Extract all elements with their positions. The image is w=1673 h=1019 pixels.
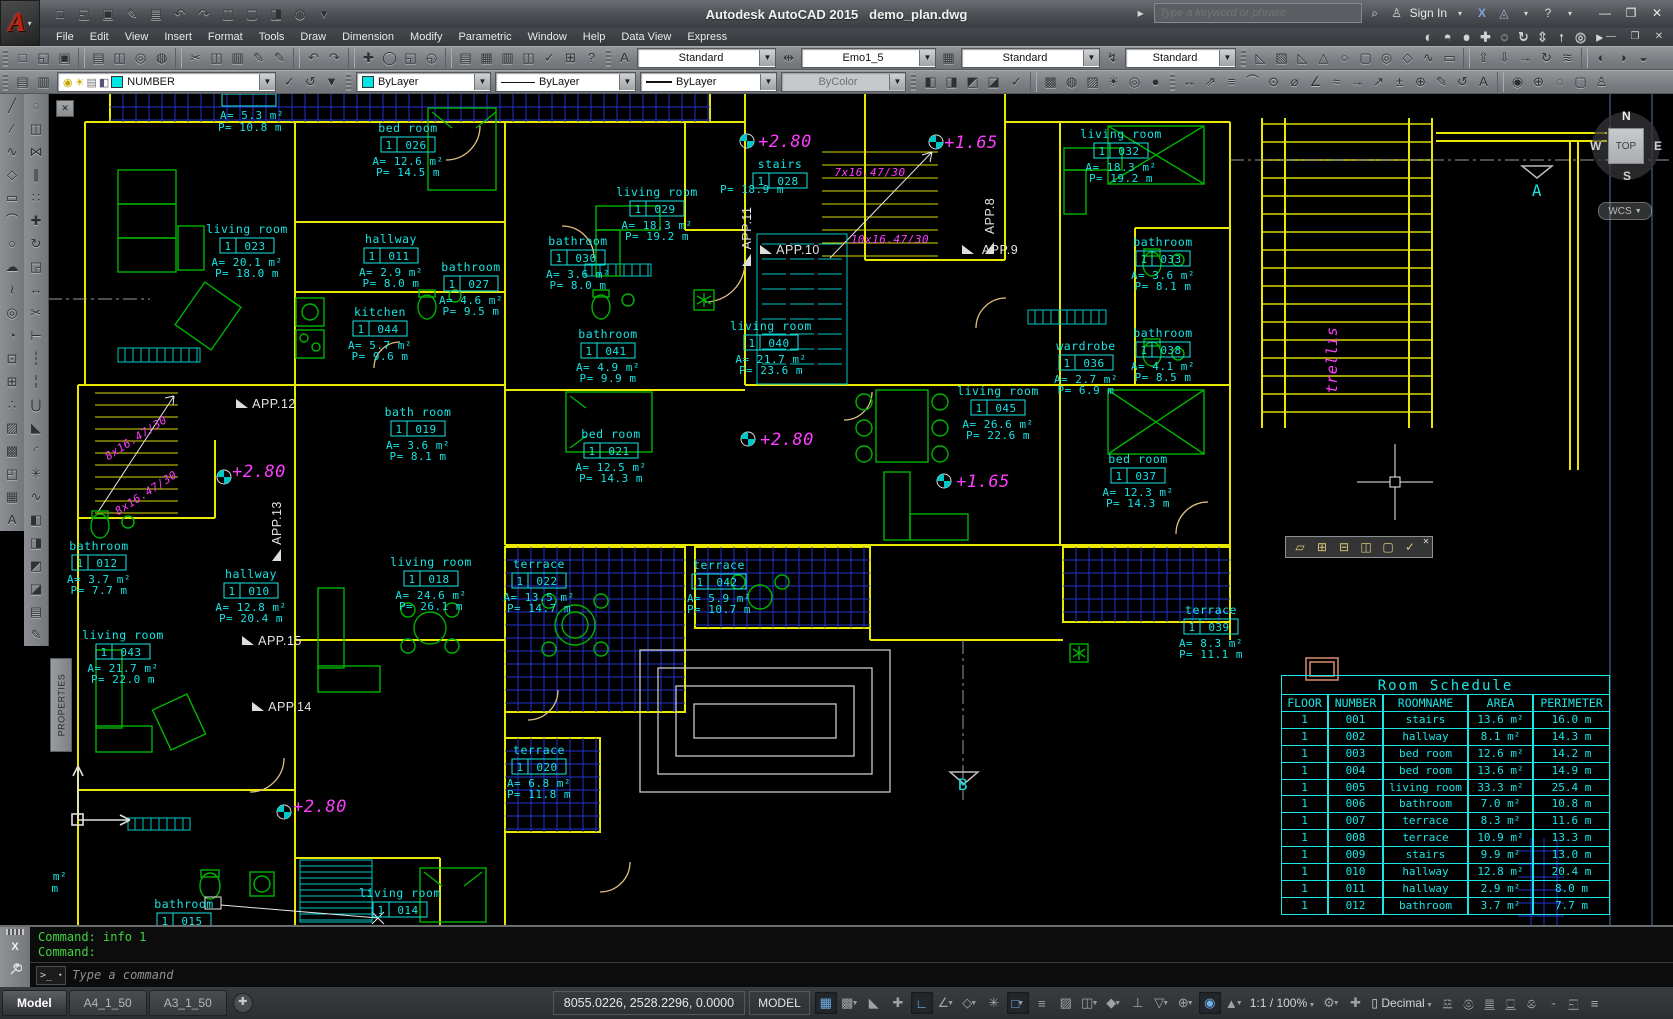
move-icon[interactable]: ✚ (25, 209, 47, 232)
drawing-canvas[interactable]: bed room1026A= 12.6 m²P= 14.5 mliving ro… (0, 94, 1673, 925)
erase-icon[interactable]: ◌ (25, 94, 47, 117)
ortho-mode-toggle[interactable]: ∟ (911, 992, 933, 1014)
menu-dimension[interactable]: Dimension (334, 31, 402, 43)
dim-leader-icon[interactable]: ↗ (1368, 72, 1389, 92)
design-center-icon[interactable]: ▦ (476, 48, 497, 68)
help-icon[interactable]: ? (581, 48, 602, 68)
schedule-row: 1002hallway8.1 m²14.3 m (1281, 729, 1610, 746)
scale-icon[interactable]: ◲ (25, 255, 47, 278)
multiline-text-icon[interactable]: A (1, 508, 23, 531)
command-input-row[interactable]: >_ ▾ Type a command (30, 963, 1673, 987)
properties-panel-tab[interactable]: PROPERTIES (50, 658, 72, 752)
pan-icon[interactable]: ✚ (358, 48, 379, 68)
cone-icon[interactable]: △ (1313, 48, 1334, 68)
dim-continue-icon[interactable]: → (1347, 72, 1368, 92)
svg-text:P= 14.7 m: P= 14.7 m (507, 602, 571, 615)
undo-icon[interactable]: ↶ (303, 48, 324, 68)
command-history[interactable]: Command: info 1 Command: (30, 927, 1673, 963)
cylinder-icon[interactable]: ▢ (1355, 48, 1376, 68)
mirror-icon[interactable]: ⋈ (25, 140, 47, 163)
text-style-combo[interactable]: Standard▼ (637, 48, 776, 68)
viewcube-south[interactable]: S (1623, 169, 1631, 183)
quick-calc-icon[interactable]: ⊞ (560, 48, 581, 68)
save-icon[interactable]: ▣ (96, 4, 120, 24)
isometric-drafting-toggle[interactable]: ◇▼ (959, 992, 981, 1014)
redo-icon[interactable]: ↷ (192, 4, 216, 24)
ellipse-arc-icon[interactable]: ◔ (1, 324, 23, 347)
cut-icon[interactable]: ✂ (185, 48, 206, 68)
layer-combo[interactable]: ◉ ☀ ▤ ◧ NUMBER▼ (57, 72, 276, 92)
hatch-icon[interactable]: ▨ (1, 416, 23, 439)
zoom-window-icon[interactable]: ◱ (400, 48, 421, 68)
command-window-grip[interactable]: X (0, 927, 30, 987)
new-icon[interactable]: □ (12, 48, 33, 68)
dim-edit-icon[interactable]: ✎ (1431, 72, 1452, 92)
linetype-combo[interactable]: ByLayer▼ (495, 72, 636, 92)
svg-text:P= 18.9 m: P= 18.9 m (720, 183, 784, 196)
pyramid-icon[interactable]: ◇ (1397, 48, 1418, 68)
svg-text:1: 1 (555, 252, 562, 265)
selection-cycling-toggle[interactable]: ◫▼ (1079, 992, 1101, 1014)
open-icon[interactable]: ◱ (33, 48, 54, 68)
object-snap-toggle[interactable]: □▼ (1007, 992, 1029, 1014)
svg-text:P= 8.0 m: P= 8.0 m (550, 279, 607, 292)
named-views-icon[interactable]: ▢ (1570, 72, 1591, 92)
dim-arc-icon[interactable]: ⌒ (1242, 72, 1263, 92)
add-to-working-set-icon[interactable]: ⊞ (1311, 538, 1333, 556)
doc-restore-button[interactable]: ❐ (1623, 30, 1647, 44)
helix-icon[interactable]: ∿ (1418, 48, 1439, 68)
svg-text:bathroom: bathroom (1133, 326, 1192, 340)
menu-view[interactable]: View (117, 31, 157, 43)
table-style-combo[interactable]: Standard▼ (961, 48, 1100, 68)
dim-baseline-icon[interactable]: ≡ (1221, 72, 1242, 92)
vs-hidden-icon[interactable]: ◒ (1633, 48, 1654, 68)
draworder-front-icon[interactable]: ◧ (25, 508, 47, 531)
isolate-objects-icon[interactable]: ◎ (1458, 993, 1479, 1013)
annotation-text: +2.80 (758, 132, 812, 152)
point-icon[interactable]: ∴ (1, 393, 23, 416)
customize-icon[interactable]: ▾ (312, 4, 336, 24)
dim-radius-icon[interactable]: ⊙ (1263, 72, 1284, 92)
minimize-button[interactable]: — (1593, 4, 1617, 22)
paste-icon[interactable]: ▥ (227, 48, 248, 68)
construction-line-icon[interactable]: ∕ (1, 117, 23, 140)
publish-web-icon[interactable]: ◍ (151, 48, 172, 68)
match-block-icon[interactable]: ✎ (269, 48, 290, 68)
coordinates-readout[interactable]: 8055.0226, 2528.2296, 0.0000 (553, 991, 745, 1015)
help-icon[interactable]: ? (1539, 6, 1557, 20)
mark-position-icon[interactable]: ⊕ (1528, 72, 1549, 92)
pedit-icon[interactable]: ∿ (25, 485, 47, 508)
publish-icon[interactable]: ◎ (130, 48, 151, 68)
gizmo-toggle[interactable]: ⊕▼ (1175, 992, 1197, 1014)
planar-surface-icon[interactable]: ▭ (1439, 48, 1460, 68)
lineweight-combo[interactable]: ByLayer▼ (640, 72, 777, 92)
infer-constraints-toggle[interactable]: ◣ (863, 992, 885, 1014)
quick-calc-icon[interactable]: ⊞ (1437, 993, 1458, 1013)
copy-icon[interactable]: ◫ (25, 117, 47, 140)
3d-object-snap-toggle[interactable]: ◆▼ (1103, 992, 1125, 1014)
menu-draw[interactable]: Draw (292, 31, 334, 43)
grid-display-toggle[interactable]: ▦ (815, 992, 837, 1014)
signin-dropdown-icon[interactable]: ▾ (1451, 9, 1469, 18)
fillet-icon[interactable]: ◜ (25, 439, 47, 462)
menu-edit[interactable]: Edit (82, 31, 117, 43)
autodesk360-icon[interactable]: ◬ (1495, 6, 1513, 20)
revolve-icon[interactable]: ↻ (1536, 48, 1557, 68)
rectangle-icon[interactable]: ▭ (1, 186, 23, 209)
tool-palettes-icon[interactable]: ▥ (497, 48, 518, 68)
3d-walk-icon[interactable]: ↑ (1552, 27, 1571, 47)
room-labels: bed room1026A= 12.6 m²P= 14.5 mliving ro… (51, 109, 1243, 925)
open-reference-icon[interactable]: ◫ (1355, 538, 1377, 556)
create-block-icon[interactable]: ⊞ (1, 370, 23, 393)
clean-screen-icon[interactable]: ◱ (1563, 993, 1584, 1013)
vs-conceptual-icon[interactable]: ◓ (1438, 27, 1457, 47)
circle-icon[interactable]: ○ (1, 232, 23, 255)
svg-text:terrace: terrace (1185, 603, 1237, 617)
presspull-icon[interactable]: ⇩ (1494, 48, 1515, 68)
show-lineweight-toggle[interactable]: ≡ (1031, 992, 1053, 1014)
apartment-label: APP.11 (740, 207, 754, 266)
menu-format[interactable]: Format (200, 31, 251, 43)
user-icon[interactable]: ♙ (1591, 72, 1612, 92)
ellipse-icon[interactable]: ◎ (1, 301, 23, 324)
close-reference-icon[interactable]: ▢ (1377, 538, 1399, 556)
workspace-switching-icon[interactable]: ⚙▼ (1320, 992, 1342, 1014)
render-region-icon[interactable]: ▩ (1040, 72, 1061, 92)
copy-icon[interactable]: ◫ (206, 48, 227, 68)
polyline-icon[interactable]: ∿ (1, 140, 23, 163)
vs-wireframe-icon[interactable]: ◑ (1612, 48, 1633, 68)
dim-diameter-icon[interactable]: ⌀ (1284, 72, 1305, 92)
spell-check-icon[interactable]: ✓ (1006, 72, 1027, 92)
draworder-send-back-icon[interactable]: ◨ (941, 72, 962, 92)
layer-previous-icon[interactable]: ↺ (300, 72, 321, 92)
new-layout-button[interactable]: ✚ (233, 993, 253, 1013)
close-button[interactable]: ✕ (1645, 4, 1669, 22)
redo-icon[interactable]: ↷ (324, 48, 345, 68)
exchange-apps-icon[interactable]: X (1473, 6, 1491, 20)
room-label-038: bathroom1038A= 4.1 m²P= 8.5 m (1131, 326, 1195, 384)
layer-filters-icon[interactable]: ▥ (33, 72, 54, 92)
selection-filtering-toggle[interactable]: ▽▼ (1151, 992, 1173, 1014)
customization-icon[interactable]: ≡ (1584, 993, 1605, 1013)
plot-status-icon[interactable]: ▤ (1479, 993, 1500, 1013)
dim-angular-icon[interactable]: ∠ (1305, 72, 1326, 92)
svg-text:021: 021 (608, 445, 629, 458)
edit-reference-icon[interactable]: ▱ (1289, 538, 1311, 556)
annotation-monitor-icon[interactable]: ✚ (1344, 992, 1366, 1014)
svg-text:P= 10.8 m: P= 10.8 m (218, 121, 282, 134)
autoscale-toggle[interactable]: ▲▼ (1223, 992, 1245, 1014)
svg-text:1: 1 (585, 345, 592, 358)
svg-text:1: 1 (100, 646, 107, 659)
layer-states-icon[interactable]: ▼ (321, 72, 342, 92)
menubar-nav-icons: ◐◓●✚◌↻⇳↑◎▸ (1419, 27, 1609, 47)
svg-text:bathroom: bathroom (578, 327, 637, 341)
model-space-button[interactable]: MODEL (749, 991, 810, 1015)
line-icon[interactable]: ╱ (1, 94, 23, 117)
section-letter-B: B (958, 775, 968, 794)
clean-icon[interactable]: ◌ (1549, 72, 1570, 92)
svg-text:P= 14.5 m: P= 14.5 m (376, 166, 440, 179)
gradient-icon[interactable]: ▩ (1, 439, 23, 462)
svg-text:036: 036 (1083, 357, 1104, 370)
array-icon[interactable]: ∷ (25, 186, 47, 209)
render-sphere-icon[interactable]: ◍ (288, 4, 312, 24)
svg-text:P= 22.6 m: P= 22.6 m (966, 429, 1030, 442)
search-input[interactable] (1154, 3, 1362, 23)
doc-close-button[interactable]: ✕ (1647, 30, 1671, 44)
trim-icon[interactable]: ✂ (25, 301, 47, 324)
vs-2d-wireframe-icon[interactable]: ◐ (1419, 27, 1438, 47)
polysolid-icon[interactable]: ◺ (1250, 48, 1271, 68)
spline-icon[interactable]: ≀ (1, 278, 23, 301)
svg-text:022: 022 (536, 575, 557, 588)
revision-cloud-icon[interactable]: ☁ (1, 255, 23, 278)
dim-aligned-icon[interactable]: ⇗ (1200, 72, 1221, 92)
object-snap-tracking-toggle[interactable]: ✳ (983, 992, 1005, 1014)
insert-block-icon[interactable]: ⊡ (1, 347, 23, 370)
help-dropdown-icon[interactable]: ▾ (1561, 9, 1579, 18)
torus-icon[interactable]: ◎ (1376, 48, 1397, 68)
room-label-037: bed room1037A= 12.3 m²P= 14.3 m (1102, 452, 1173, 510)
table-icon[interactable]: ▦ (1, 485, 23, 508)
elevation-marker (277, 805, 291, 819)
match-properties-icon[interactable]: ✎ (248, 48, 269, 68)
loft-icon[interactable]: ≋ (1557, 48, 1578, 68)
snap-mode-toggle[interactable]: ▩▼ (839, 992, 861, 1014)
extrude-icon[interactable]: ⇧ (1473, 48, 1494, 68)
save-reference-edits-icon[interactable]: ✓ (1399, 538, 1421, 556)
zoom-realtime-icon[interactable]: ◯ (379, 48, 400, 68)
zoom-previous-icon[interactable]: ◵ (421, 48, 442, 68)
svg-text:P= 8.1 m: P= 8.1 m (390, 450, 447, 463)
dim-linear-icon[interactable]: ↔ (1179, 72, 1200, 92)
search-icon[interactable]: ⌕ (1366, 6, 1384, 21)
extend-icon[interactable]: ⊢ (25, 324, 47, 347)
save-as-icon[interactable]: ✎ (120, 4, 144, 24)
markup-icon[interactable]: ✓ (539, 48, 560, 68)
svg-text:living room: living room (206, 222, 288, 236)
viewcube-west[interactable]: W (1590, 139, 1601, 153)
box-icon[interactable]: ▧ (1271, 48, 1292, 68)
tab-model[interactable]: Model (2, 990, 67, 1016)
color-combo[interactable]: ByLayer▼ (356, 72, 491, 92)
svg-text:living room: living room (957, 384, 1039, 398)
draworder-under-icon[interactable]: ◪ (25, 577, 47, 600)
svg-text:042: 042 (716, 576, 737, 589)
menu-parametric[interactable]: Parametric (450, 31, 519, 43)
polar-tracking-toggle[interactable]: ∠▼ (935, 992, 957, 1014)
toolbar-close-button[interactable]: ✕ (56, 100, 74, 117)
chamfer-icon[interactable]: ◣ (25, 416, 47, 439)
signin-button[interactable]: Sign In (1410, 6, 1447, 20)
svg-text:living room: living room (616, 185, 698, 199)
svg-text:1: 1 (395, 423, 402, 436)
mleader-style-combo[interactable]: Standard▼ (1125, 48, 1236, 68)
layer-on-icon[interactable]: ◉ (63, 76, 73, 89)
layer-freeze-icon[interactable]: ☀ (75, 76, 85, 89)
elevation-marker (741, 432, 755, 446)
doc-restore-icon[interactable]: ▢ (240, 4, 264, 24)
svg-text:bed room: bed room (1108, 452, 1167, 466)
draworder-bring-above-icon[interactable]: ◩ (962, 72, 983, 92)
viewcube[interactable]: N W E S TOP (1592, 112, 1660, 180)
menu-modify[interactable]: Modify (402, 31, 450, 43)
svg-text:living room: living room (1080, 127, 1162, 141)
viewcube-top-face[interactable]: TOP (1608, 128, 1644, 164)
layer-lock-icon[interactable]: ◧ (99, 76, 109, 89)
sphere-icon[interactable]: ○ (1334, 48, 1355, 68)
menu-data-view[interactable]: Data View (613, 31, 679, 43)
plot-icon[interactable]: ▤ (144, 4, 168, 24)
dim-style-icon[interactable]: ⇹ (778, 48, 799, 68)
svg-text:P= 11.8 m: P= 11.8 m (507, 788, 571, 801)
3d-distance-icon[interactable]: ⇳ (1533, 27, 1552, 47)
svg-text:P= 26.1 m: P= 26.1 m (399, 600, 463, 613)
advanced-render-icon[interactable]: ● (1145, 72, 1166, 92)
material-mapping-icon[interactable]: ▨ (1082, 72, 1103, 92)
dynamic-input-toggle[interactable]: ✚ (887, 992, 909, 1014)
doc-compare-icon[interactable]: ◫ (216, 4, 240, 24)
save-settings-icon[interactable]: ▣ (1500, 993, 1521, 1013)
draworder-back-icon[interactable]: ◨ (25, 531, 47, 554)
dim-center-icon[interactable]: ⊕ (1410, 72, 1431, 92)
menu-file[interactable]: File (48, 31, 82, 43)
command-input[interactable]: Type a command (72, 968, 173, 982)
properties-palette-icon[interactable]: ▤ (455, 48, 476, 68)
explode-icon[interactable]: ✳ (25, 462, 47, 485)
command-prompt-icon[interactable]: >_ ▾ (36, 966, 66, 985)
polygon-icon[interactable]: ◇ (1, 163, 23, 186)
annotation-scale-button[interactable]: 1:1 / 100% ▼ (1246, 996, 1320, 1010)
statusbar: Model A4_1_50 A3_1_50 ✚ 8055.0226, 2528.… (0, 987, 1673, 1019)
mleader-style-icon[interactable]: ↯ (1102, 48, 1123, 68)
external-stairs (640, 650, 890, 792)
wedge-icon[interactable]: ◺ (1292, 48, 1313, 68)
svg-text:m: m (51, 882, 58, 895)
sweep-icon[interactable]: → (1515, 48, 1536, 68)
svg-text:P= 8.0 m: P= 8.0 m (363, 277, 420, 290)
remove-from-working-set-icon[interactable]: ⊟ (1333, 538, 1355, 556)
plot-icon[interactable]: ▤ (88, 48, 109, 68)
sheet-set-manager-icon[interactable]: ◫ (518, 48, 539, 68)
dim-tolerance-icon[interactable]: ± (1389, 72, 1410, 92)
annotation-visibility-toggle[interactable]: ◉ (1199, 992, 1221, 1014)
hyperlink-icon[interactable]: ⊗ (1521, 993, 1542, 1013)
match-properties-icon[interactable]: ✎ (25, 623, 47, 646)
tab-layout-a3[interactable]: A3_1_50 (149, 990, 227, 1016)
plot-preview-icon[interactable]: ◫ (109, 48, 130, 68)
menu-insert[interactable]: Insert (156, 31, 200, 43)
dim-quick-icon[interactable]: ≈ (1326, 72, 1347, 92)
menu-tools[interactable]: Tools (251, 31, 293, 43)
dim-style-combo[interactable]: Emo1_5▼ (801, 48, 936, 68)
doc-transfer-icon[interactable]: ◨ (264, 4, 288, 24)
autodesk360-dropdown-icon[interactable]: ▾ (1517, 9, 1535, 18)
new-icon[interactable]: □ (48, 4, 72, 24)
svg-text:1: 1 (385, 139, 392, 152)
performance-monitor-icon[interactable]: ◔ (1542, 993, 1563, 1013)
region-icon[interactable]: ◰ (1, 462, 23, 485)
layer-plot-icon[interactable]: ▤ (86, 76, 96, 89)
steering-wheel-icon[interactable]: ◎ (1571, 27, 1590, 47)
dim-style-icon[interactable]: A (1473, 72, 1494, 92)
text-style-icon[interactable]: A (614, 48, 635, 68)
dim-update-icon[interactable]: ↺ (1452, 72, 1473, 92)
geographic-location-icon[interactable]: ◉ (1507, 72, 1528, 92)
materials-icon[interactable]: ◍ (1061, 72, 1082, 92)
break-icon[interactable]: ╎ (25, 370, 47, 393)
render-environment-icon[interactable]: ◎ (1124, 72, 1145, 92)
arc-icon[interactable]: ⌒ (1, 209, 23, 232)
refedit-close-icon[interactable]: ✕ (1421, 537, 1431, 546)
draworder-send-under-icon[interactable]: ◪ (983, 72, 1004, 92)
draworder-bring-front-icon[interactable]: ◧ (920, 72, 941, 92)
room-label-040: living room1040A= 21.7 m²P= 23.6 m (730, 319, 812, 377)
menu-help[interactable]: Help (575, 31, 614, 43)
properties-palette-icon[interactable]: ▤ (25, 600, 47, 623)
room-label-033: bathroom1033A= 3.6 m²P= 8.1 m (1131, 235, 1195, 293)
dynamic-ucs-toggle[interactable]: ⊥ (1127, 992, 1149, 1014)
vs-2d-wireframe-icon[interactable]: ◐ (1591, 48, 1612, 68)
lights-icon[interactable]: ☀ (1103, 72, 1124, 92)
viewcube-north[interactable]: N (1622, 109, 1631, 123)
tab-layout-a4[interactable]: A4_1_50 (69, 990, 147, 1016)
stretch-icon[interactable]: ↔ (25, 278, 47, 301)
make-current-icon[interactable]: ✓ (279, 72, 300, 92)
room-label-018: living room1018A= 24.6 m²P= 26.1 m (390, 555, 472, 613)
save-icon[interactable]: ▣ (54, 48, 75, 68)
command-close-icon[interactable]: X (11, 941, 18, 953)
elevation-marker (929, 135, 943, 149)
3d-swivel-icon[interactable]: ↻ (1514, 27, 1533, 47)
svg-text:1: 1 (76, 557, 83, 570)
3d-pan-icon[interactable]: ✚ (1476, 27, 1495, 47)
autocad-logo-button[interactable]: A▾ (0, 0, 40, 46)
wcs-selector[interactable]: WCS▼ (1598, 202, 1652, 220)
menu-express[interactable]: Express (679, 31, 735, 43)
doc-minimize-button[interactable]: — (1599, 30, 1623, 44)
restore-button[interactable]: ❐ (1619, 4, 1643, 22)
draworder-above-icon[interactable]: ◩ (25, 554, 47, 577)
units-button[interactable]: ▯ Decimal ▼ (1367, 996, 1437, 1010)
undo-icon[interactable]: ↶ (168, 4, 192, 24)
viewcube-east[interactable]: E (1654, 139, 1662, 153)
vs-realistic-icon[interactable]: ● (1457, 27, 1476, 47)
titlebar: A▾ □◱▣✎▤↶↷◫▢◨◍▾ Autodesk AutoCAD 2015 de… (0, 0, 1673, 28)
room-label-026: bed room1026A= 12.6 m²P= 14.5 m (372, 121, 443, 179)
offset-icon[interactable]: ∥ (25, 163, 47, 186)
break-at-point-icon[interactable]: ┆ (25, 347, 47, 370)
3d-orbit-icon[interactable]: ◌ (1495, 27, 1514, 47)
join-icon[interactable]: ⋃ (25, 393, 47, 416)
menu-window[interactable]: Window (520, 31, 575, 43)
rotate-icon[interactable]: ↻ (25, 232, 47, 255)
infocenter-expand-icon[interactable]: ▸ (1132, 6, 1150, 20)
transparency-toggle[interactable]: ▨ (1055, 992, 1077, 1014)
layer-properties-icon[interactable]: ▤ (12, 72, 33, 92)
svg-text:1: 1 (1140, 253, 1147, 266)
apartment-label: APP.15 (242, 634, 302, 648)
command-customize-icon[interactable] (9, 963, 22, 979)
table-style-icon[interactable]: ▦ (938, 48, 959, 68)
svg-text:terrace: terrace (513, 557, 565, 571)
open-icon[interactable]: ◱ (72, 4, 96, 24)
